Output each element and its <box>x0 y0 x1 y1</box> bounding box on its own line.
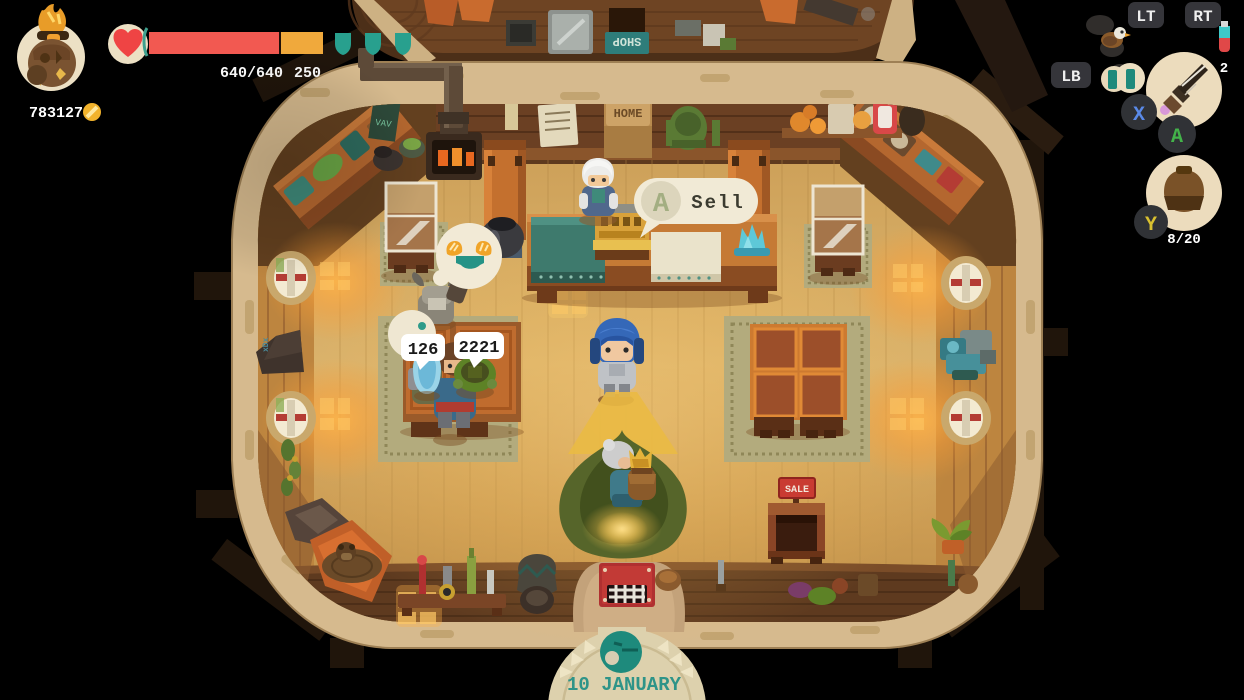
svg-text:A: A <box>1171 126 1183 149</box>
svg-text:X: X <box>1133 104 1145 127</box>
svg-text:10 JANUARY: 10 JANUARY <box>567 674 682 696</box>
svg-text:Sell: Sell <box>691 192 745 214</box>
svg-text:xDx: xDx <box>262 337 271 352</box>
svg-text:8/20: 8/20 <box>1167 232 1201 248</box>
svg-text:2221: 2221 <box>459 339 500 358</box>
svg-text:SALE: SALE <box>785 485 809 496</box>
svg-text:Y: Y <box>1145 214 1157 237</box>
svg-text:A: A <box>653 190 670 220</box>
svg-text:HOME: HOME <box>614 107 643 121</box>
svg-text:LT: LT <box>1136 8 1156 26</box>
svg-text:126: 126 <box>408 341 439 360</box>
svg-text:2: 2 <box>1220 61 1228 77</box>
svg-text:LB: LB <box>1061 68 1081 86</box>
svg-text:783127: 783127 <box>29 105 83 122</box>
svg-text:RT: RT <box>1193 8 1213 26</box>
svg-text:SHOP: SHOP <box>613 34 642 48</box>
